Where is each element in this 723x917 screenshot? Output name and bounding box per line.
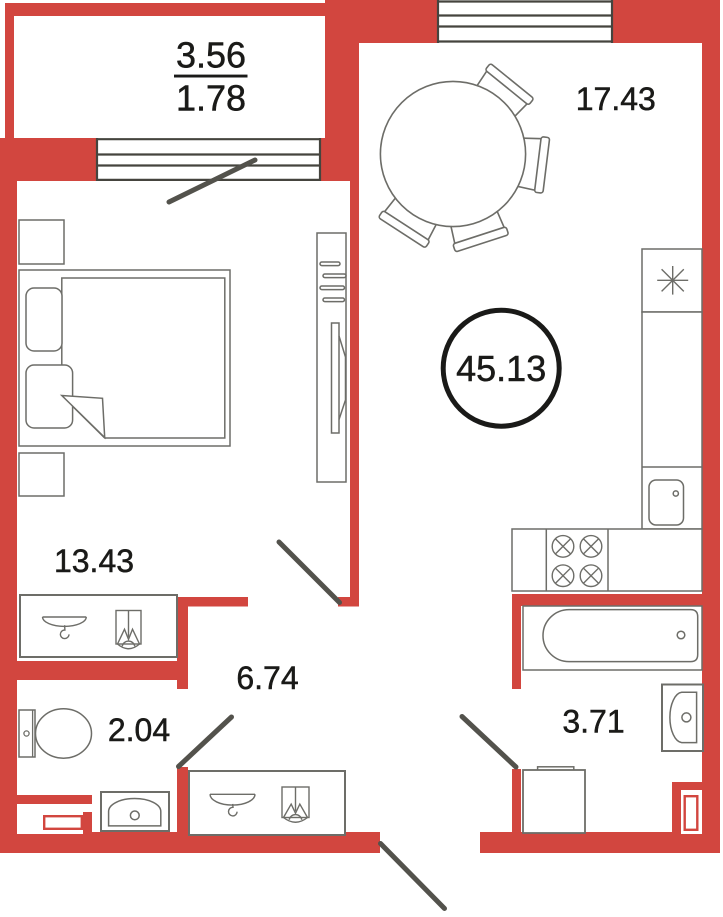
svg-text:2.04: 2.04 bbox=[108, 712, 170, 748]
svg-text:45.13: 45.13 bbox=[456, 348, 546, 389]
svg-text:1.78: 1.78 bbox=[176, 78, 246, 119]
svg-text:3.71: 3.71 bbox=[562, 704, 624, 740]
svg-text:13.43: 13.43 bbox=[54, 543, 134, 579]
svg-text:3.56: 3.56 bbox=[176, 35, 246, 76]
svg-text:17.43: 17.43 bbox=[576, 81, 656, 117]
svg-text:6.74: 6.74 bbox=[236, 660, 298, 696]
